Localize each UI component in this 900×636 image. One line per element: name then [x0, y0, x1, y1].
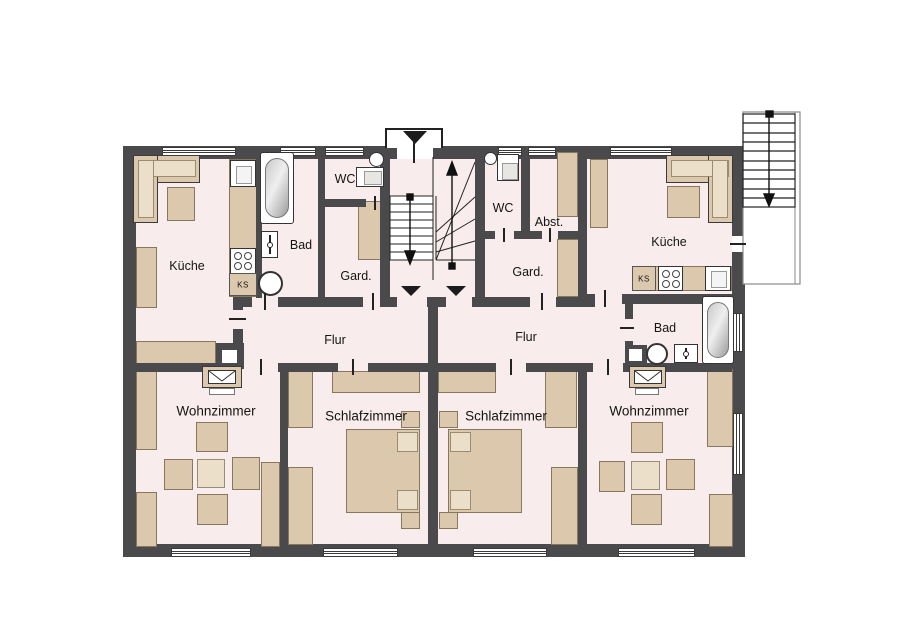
window — [162, 147, 236, 156]
wall — [278, 363, 338, 372]
window — [733, 413, 743, 475]
shelf — [136, 492, 157, 547]
wardrobe — [288, 367, 313, 428]
wall — [280, 371, 288, 544]
window — [618, 548, 695, 557]
shelf — [136, 367, 157, 450]
stairs-icon — [390, 157, 475, 298]
tv-stand — [202, 366, 242, 388]
fridge-label-right: KS — [638, 275, 650, 284]
window — [171, 548, 251, 557]
washbasin-icon — [261, 231, 278, 258]
pillow — [450, 490, 471, 510]
floor-plan: Küche Bad WC Gard. Flur Wohnzimmer Schla… — [0, 0, 900, 636]
wall — [233, 329, 243, 344]
wall — [521, 159, 530, 239]
coffee-table — [631, 461, 660, 490]
tv-stand — [629, 366, 666, 388]
wall — [578, 371, 587, 544]
kitchen-table — [667, 186, 700, 218]
nightstand — [401, 512, 420, 529]
wall — [383, 297, 397, 307]
door-tick — [510, 359, 512, 375]
wardrobe — [288, 467, 313, 545]
door-tick — [413, 141, 415, 163]
armchair — [164, 459, 193, 490]
wardrobe — [557, 152, 578, 217]
entrance-arrow-icon — [401, 286, 421, 296]
sink-icon — [705, 266, 731, 291]
door-tick — [229, 318, 246, 320]
shelf — [707, 369, 733, 447]
room-label-wc-right: WC — [493, 201, 514, 215]
coffee-table — [197, 459, 225, 488]
wall — [472, 297, 530, 307]
armchair — [599, 461, 625, 492]
pillow — [397, 490, 418, 510]
window — [473, 548, 547, 557]
corner-bench-seat — [138, 160, 154, 218]
room-label-schlafzimmer-right: Schlafzimmer — [465, 409, 547, 424]
sink-icon — [230, 160, 256, 187]
external-stairs-icon — [742, 110, 804, 288]
nightstand — [439, 512, 458, 529]
armchair — [631, 494, 662, 525]
sideboard — [136, 341, 216, 365]
washing-machine-icon — [258, 271, 283, 296]
room-label-schlafzimmer-left: Schlafzimmer — [325, 409, 407, 424]
tv-pedestal — [635, 388, 659, 395]
wall — [526, 363, 587, 372]
window — [323, 548, 398, 557]
wardrobe — [438, 371, 496, 393]
wall — [428, 297, 438, 544]
door-tick — [352, 359, 354, 375]
room-label-wohnzimmer-right: Wohnzimmer — [609, 404, 688, 419]
wall — [368, 363, 428, 372]
wall — [578, 159, 587, 307]
shelf — [590, 159, 608, 228]
bathtub-icon — [260, 152, 294, 224]
wall — [587, 294, 595, 307]
room-label-kueche-right: Küche — [651, 235, 686, 249]
shelf — [709, 494, 733, 547]
wall — [475, 159, 485, 307]
corner-bench-seat — [712, 160, 728, 218]
armchair — [232, 457, 260, 490]
wc-sink-icon — [484, 152, 497, 165]
wall — [325, 199, 366, 207]
wardrobe — [332, 371, 420, 393]
door-tick — [372, 293, 374, 310]
armchair — [196, 422, 228, 452]
chimney-flue — [629, 349, 642, 361]
entrance-arrow-icon — [446, 286, 466, 296]
pillow — [450, 432, 471, 452]
wall — [427, 297, 446, 307]
toilet-icon — [497, 154, 519, 181]
door-tick — [604, 290, 606, 307]
armchair — [631, 422, 663, 453]
room-label-bad-left: Bad — [290, 238, 312, 252]
stove-icon — [230, 248, 256, 274]
window — [610, 147, 672, 156]
room-label-flur-right: Flur — [515, 330, 537, 344]
wall — [237, 297, 252, 307]
chimney-flue — [222, 350, 237, 363]
bathtub-icon — [702, 296, 734, 364]
wardrobe — [545, 367, 577, 428]
shelf — [136, 247, 157, 308]
wall — [587, 363, 593, 372]
armchair — [197, 494, 228, 525]
kitchen-table — [167, 187, 195, 221]
entrance-arrow-icon — [403, 131, 427, 144]
toilet-icon — [356, 167, 384, 187]
armchair — [666, 459, 695, 490]
tv-pedestal — [209, 388, 235, 395]
door-tick — [503, 228, 505, 242]
wall — [556, 297, 587, 307]
fridge-label-left: KS — [237, 281, 249, 290]
nightstand — [439, 411, 458, 428]
wall — [514, 231, 542, 239]
wc-sink-icon — [369, 152, 384, 167]
wall — [625, 303, 633, 319]
door-tick — [374, 196, 376, 210]
wall — [278, 297, 363, 307]
room-label-flur-left: Flur — [324, 333, 346, 347]
door-tick — [549, 228, 551, 242]
window — [733, 313, 743, 352]
room-label-wc-left: WC — [335, 172, 356, 186]
shelf — [261, 462, 280, 547]
wall — [318, 159, 325, 298]
pillow — [397, 432, 418, 452]
wall — [438, 363, 496, 372]
room-label-bad-right: Bad — [654, 321, 676, 335]
room-label-gard-left: Gard. — [340, 269, 371, 283]
door-tick — [620, 327, 634, 329]
door-tick — [607, 359, 609, 375]
room-label-abst-right: Abst. — [535, 215, 564, 229]
door-tick — [260, 359, 262, 375]
window — [325, 147, 364, 156]
door-tick — [730, 243, 746, 245]
wardrobe — [557, 239, 579, 297]
tv-icon — [208, 370, 236, 384]
washing-machine-icon — [646, 343, 668, 365]
wall — [485, 231, 495, 239]
wardrobe — [551, 467, 578, 545]
room-label-wohnzimmer-left: Wohnzimmer — [176, 404, 255, 419]
window — [528, 147, 556, 156]
tv-icon — [634, 370, 662, 384]
door-tick — [541, 293, 543, 310]
wall — [558, 231, 578, 239]
washbasin-icon — [674, 344, 698, 363]
room-label-kueche-left: Küche — [169, 259, 204, 273]
stove-icon — [658, 266, 683, 291]
room-label-gard-right: Gard. — [512, 265, 543, 279]
door-tick — [264, 293, 266, 310]
